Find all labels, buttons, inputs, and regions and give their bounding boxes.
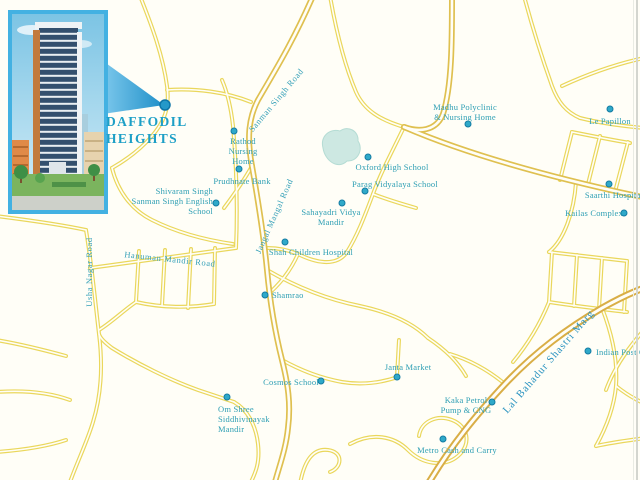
project-inset-photo — [8, 10, 108, 214]
road-label-hanuman-mandir-road: Hanuman Mandir Road — [124, 249, 216, 269]
label-metro-cash-and-carry: Metro Cash and Carry — [417, 445, 497, 455]
marker-prudhnate-bank — [236, 166, 243, 173]
label-kaka-petrol-pump: Kaka Petrol Pump & CNG — [441, 395, 492, 415]
label-janta-market: Janta Market — [385, 362, 432, 372]
marker-shah-children-hospital — [282, 239, 289, 246]
marker-om-shree-siddhivinayak-mandir — [224, 394, 231, 401]
label-rathod-nursing-home: Rathod Nursing Home — [229, 136, 258, 167]
label-sahayadri-vidya-mandir: Sahayadri Vidya Mandir — [301, 207, 360, 227]
marker-metro-cash-and-carry — [440, 436, 447, 443]
label-om-shree-siddhivinayak-mandir: Om Shree Siddhivinayak Mandir — [218, 404, 270, 435]
marker-saarthi-hospital — [606, 181, 613, 188]
marker-indian-post-office — [585, 348, 592, 355]
label-le-papillon: Le Papillon — [589, 116, 631, 126]
building-illustration — [12, 14, 104, 210]
road-label-jangal-mangal-road: Jangal Mangal Road — [253, 177, 295, 255]
marker-shivaram-singh-school — [213, 200, 220, 207]
label-madhu-polyclinic: Madhu Polyclinic & Nursing Home — [433, 102, 497, 122]
label-shivaram-singh-school: Shivaram Singh Sanman Singh English Scho… — [132, 186, 213, 217]
label-cosmos-school: Cosmos School — [263, 377, 319, 387]
label-shamrao: Shamrao — [272, 290, 304, 300]
marker-shamrao — [262, 292, 269, 299]
marker-sahayadri-vidya-mandir — [339, 200, 346, 207]
marker-oxford-high-school — [365, 154, 372, 161]
project-name-line1: DAFFODIL — [106, 114, 188, 131]
marker-janta-market — [394, 374, 401, 381]
brochure-map-page: Rathod Nursing HomePrudhnate BankShivara… — [0, 0, 640, 480]
road-label-lal-bahadur-shastri-marg: Lal Bahadur Shastri Marg — [501, 308, 597, 416]
label-saarthi-hospital: Saarthi Hospital — [585, 190, 640, 200]
tower — [33, 22, 82, 176]
marker-le-papillon — [607, 106, 614, 113]
project-name-line2: HEIGHTS — [106, 131, 188, 148]
label-kailas-complex: Kailas Complex — [565, 208, 623, 218]
label-parag-vidyalaya-school: Parag Vidyalaya School — [352, 179, 438, 189]
label-oxford-high-school: Oxford High School — [355, 162, 428, 172]
label-shah-children-hospital: Shah Children Hospital — [269, 247, 353, 257]
marker-rathod-nursing-home — [231, 128, 238, 135]
scan-page-edge — [636, 0, 638, 480]
label-prudhnate-bank: Prudhnate Bank — [213, 176, 270, 186]
road-label-usha-nagar-road: Usha Nagar Road — [84, 237, 94, 306]
road-label-sanman-singh-road: Sanman Singh Road — [247, 66, 306, 133]
project-name: DAFFODIL HEIGHTS — [106, 114, 188, 148]
scan-page-edge-inner — [633, 0, 634, 480]
